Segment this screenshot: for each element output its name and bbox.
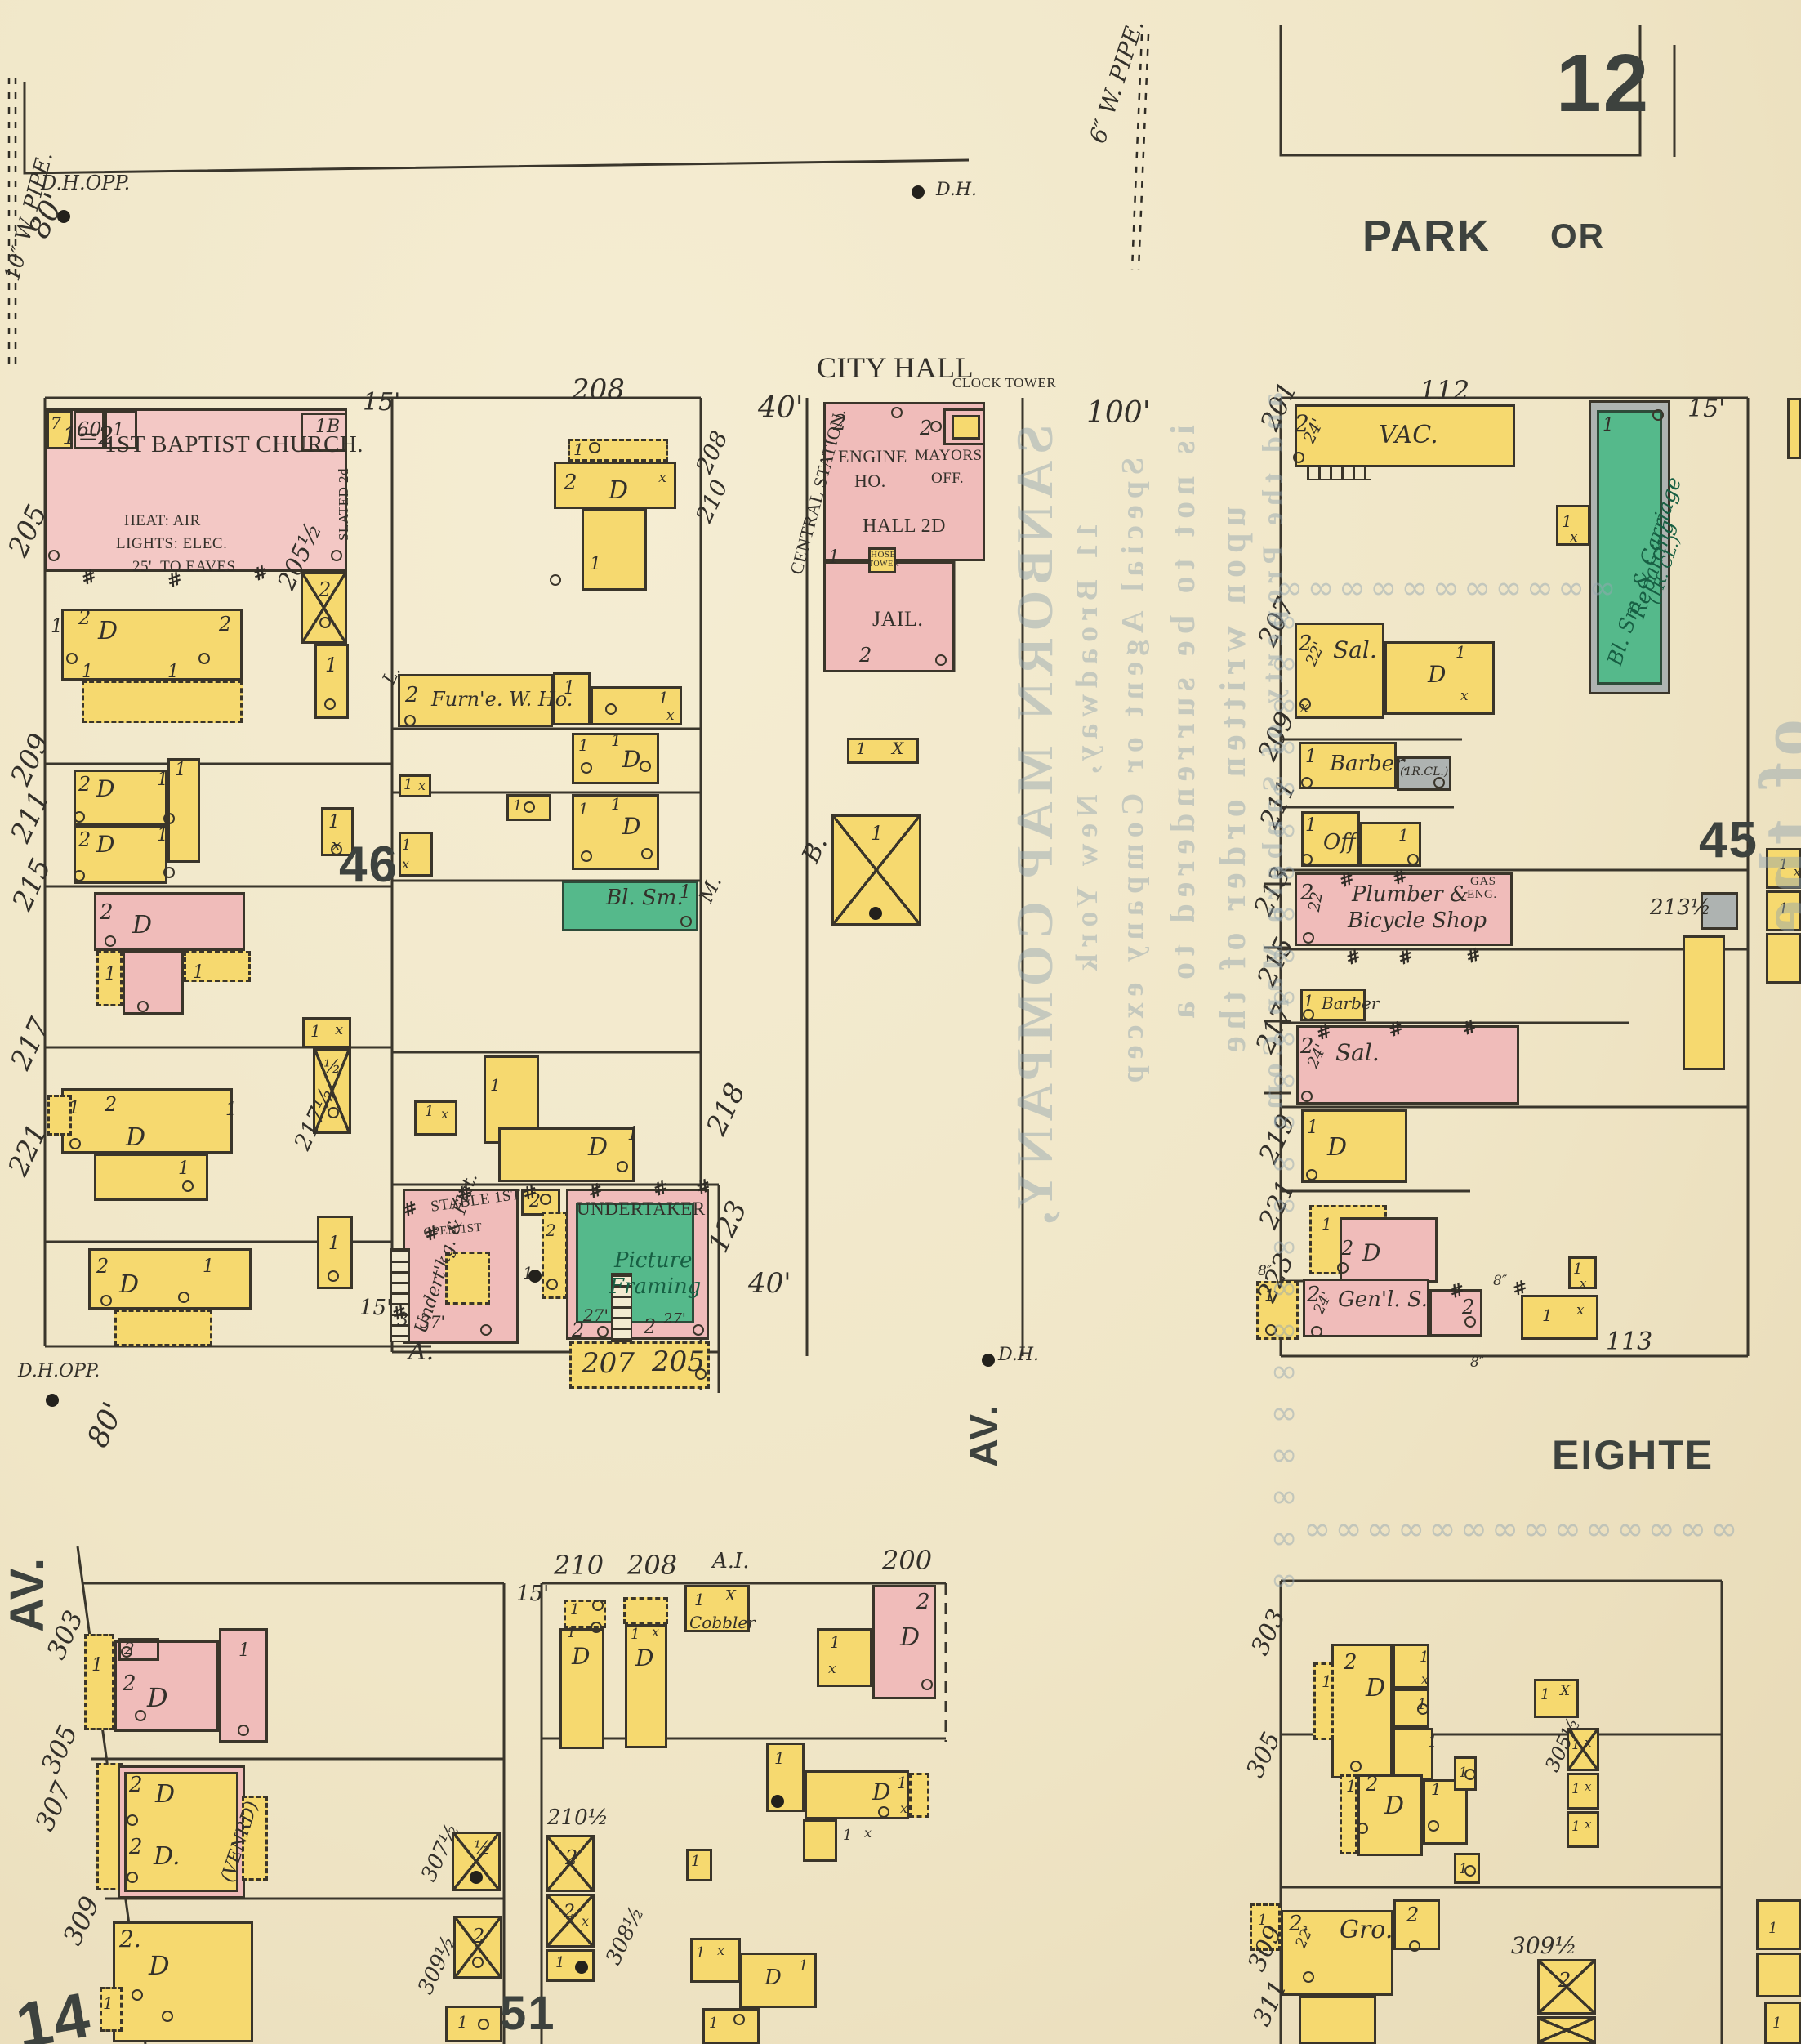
window-circle: [540, 1194, 551, 1205]
map-label: ½: [323, 1059, 341, 1077]
map-label: x: [1576, 1304, 1585, 1318]
edge-building: [1756, 1953, 1801, 1997]
window-circle: [480, 1324, 492, 1336]
map-label: x: [652, 1626, 659, 1639]
edge-building: [1764, 2002, 1801, 2044]
map-label: 8″: [1470, 1356, 1484, 1370]
edge-building: [1766, 933, 1801, 984]
hydrant-label: D.H.OPP.: [18, 1363, 100, 1381]
chain-border-watermark: ∞∞∞∞∞∞∞∞∞∞∞: [1276, 572, 1620, 605]
dwelling: [88, 1248, 252, 1310]
map-label: 1: [1322, 1673, 1332, 1689]
map-label: 2: [78, 774, 91, 794]
map-label: x: [1585, 1737, 1591, 1749]
window-circle: [597, 1326, 609, 1337]
window-circle: [878, 1806, 889, 1818]
watermark-text: SANBORN MAP COMPANY,: [1009, 425, 1061, 1231]
dwelling: [94, 1154, 208, 1201]
map-label: 1: [167, 663, 179, 681]
address-207: 207: [582, 1350, 635, 1377]
address-210b: 210: [554, 1552, 604, 1578]
porch: [82, 681, 243, 723]
address-213half: 213½: [1650, 897, 1711, 918]
map-label: x: [1585, 1819, 1591, 1831]
outbuilding: [803, 1819, 837, 1862]
map-label: x: [441, 1108, 448, 1121]
map-label: 15': [363, 391, 400, 415]
map-label: 1: [709, 2016, 718, 2031]
dwelling-wing: [123, 951, 184, 1015]
map-label: 1: [1772, 2016, 1781, 2031]
map-label: 1: [1398, 827, 1409, 843]
dwelling-label: D.: [154, 1845, 181, 1869]
map-label: 1: [799, 1959, 808, 1974]
window-circle: [921, 1679, 933, 1690]
window-circle: [546, 1279, 558, 1290]
window-circle: [182, 1180, 194, 1192]
window-circle: [137, 1001, 149, 1012]
block-number-51: 51: [500, 1990, 556, 2037]
blacksmith-label: Bl. Sm.: [606, 887, 684, 908]
map-label: 1: [691, 1854, 700, 1869]
dwelling-wing: [817, 1628, 872, 1687]
window-circle: [478, 2019, 489, 2030]
window-circle: [324, 698, 336, 710]
dwelling-label: D: [765, 1967, 782, 1988]
map-label: 2: [78, 608, 91, 627]
map-label: 2: [1406, 1905, 1419, 1925]
map-label: OFF.: [931, 471, 964, 486]
address-309halfr: 309½: [1511, 1935, 1577, 1957]
window-circle: [198, 653, 210, 664]
outbuilding: [302, 1017, 351, 1048]
window-circle: [680, 916, 692, 927]
window-circle: [581, 762, 592, 774]
map-label: 25' TO EAVES: [132, 559, 236, 574]
window-circle: [100, 1295, 112, 1306]
chain-border-watermark: ∞∞∞∞∞∞∞∞∞∞∞∞∞∞: [1304, 1513, 1741, 1546]
street-av-right: AV.: [965, 1404, 1005, 1467]
address-208b: 208: [627, 1552, 677, 1578]
map-label: 1: [843, 1828, 852, 1843]
map-label: 1: [828, 549, 840, 567]
dwelling-label: D: [572, 1645, 590, 1668]
map-label: 1: [590, 556, 601, 573]
watermark-text: is not to be surrendered to a: [1166, 425, 1201, 1024]
map-label: 1: [82, 663, 93, 681]
map-label: 1: [103, 1995, 114, 2011]
map-label: 40': [748, 1270, 791, 1297]
undertaker-label: UNDERTAKER: [577, 1199, 706, 1218]
map-label: 1: [680, 884, 691, 902]
window-circle: [581, 850, 592, 862]
street-park-or: OR: [1550, 219, 1605, 253]
street-line: [25, 82, 969, 173]
dwelling-wing: [582, 509, 647, 591]
map-label: 2: [564, 1903, 575, 1921]
window-circle: [74, 811, 85, 823]
map-label: 1: [1603, 417, 1614, 435]
porch: [623, 1597, 668, 1624]
window-circle: [693, 1324, 704, 1336]
window-circle: [1350, 1761, 1362, 1772]
map-label: 2: [405, 685, 419, 706]
map-label: 22: [1307, 890, 1326, 913]
map-label: x: [1580, 1278, 1586, 1290]
window-circle: [891, 407, 903, 418]
block-number-46: 46: [339, 840, 399, 890]
engine-house-label: ENGINE: [838, 448, 907, 466]
map-label: 27': [663, 1312, 686, 1327]
map-label: 1: [631, 1627, 640, 1642]
map-label: 1: [157, 771, 168, 789]
map-label: Framing: [609, 1276, 701, 1297]
map-label: 2: [123, 1673, 136, 1694]
mayors-office-label: MAYORS: [915, 448, 983, 463]
window-circle: [105, 935, 116, 947]
dwelling-label: D: [1327, 1136, 1347, 1160]
dwelling: [498, 1127, 635, 1182]
window-circle: [178, 1292, 189, 1303]
dwelling-label: D: [900, 1626, 920, 1650]
hydrant-dot: [771, 1795, 784, 1808]
street-width: 40': [758, 394, 804, 423]
hydrant-dot: [869, 907, 882, 920]
block-number-14: 14: [11, 1982, 96, 2044]
map-label: 7: [51, 415, 61, 431]
map-label: 2: [644, 1317, 656, 1337]
jail-label: JAIL.: [872, 609, 923, 630]
map-label: 2: [1462, 1297, 1474, 1317]
outbuilding-x: [1537, 2016, 1596, 2044]
general-store-label: Gen'l. S.: [1338, 1289, 1428, 1310]
dwelling-label: D: [155, 1783, 175, 1807]
map-label: 2: [96, 1256, 109, 1276]
map-label: 1: [578, 801, 589, 817]
map-label: 1: [225, 1101, 237, 1119]
window-circle: [1301, 1091, 1313, 1102]
hall-label: HALL 2D: [863, 516, 946, 536]
map-label: x: [1570, 531, 1578, 545]
dwelling-label: D: [872, 1781, 890, 1804]
map-label: 2: [572, 1320, 584, 1340]
map-label: 60': [77, 420, 107, 440]
street-av-left: AV.: [4, 1556, 51, 1632]
map-label: 15': [1687, 397, 1725, 422]
dwelling-label: D: [1384, 1794, 1404, 1819]
map-label: 2: [100, 902, 114, 923]
map-label: 1: [1571, 1820, 1580, 1834]
dwelling-label: D: [96, 833, 114, 856]
map-label: 1: [1346, 1778, 1357, 1794]
gas-engine-label: GAS: [1470, 876, 1496, 888]
dwelling-label: D: [126, 1126, 145, 1150]
map-label: (1R.CL.): [1400, 766, 1448, 778]
map-label: 1: [1573, 1262, 1582, 1277]
map-label: 2: [219, 614, 231, 634]
map-label: x: [335, 1023, 343, 1038]
map-label: SLATED 2d: [337, 468, 350, 541]
map-label: 2: [129, 1774, 143, 1796]
window-circle: [1303, 1971, 1314, 1983]
dwelling-label: D: [609, 479, 628, 503]
map-label: 1B: [315, 418, 340, 436]
map-label: 1: [69, 1100, 80, 1118]
map-label: 1: [1768, 1921, 1777, 1936]
window-circle: [550, 574, 561, 586]
sheet-number: 12: [1556, 42, 1650, 124]
window-circle: [605, 703, 617, 715]
map-label: 2: [1344, 1652, 1357, 1673]
clock-tower-label: CLOCK TOWER: [952, 376, 1056, 390]
map-label: 2: [859, 645, 872, 665]
map-label: 1: [567, 1626, 576, 1640]
saloon-label: Sal.: [1333, 639, 1377, 662]
map-label: 1: [830, 1634, 840, 1650]
map-label: 1: [113, 422, 124, 440]
window-circle: [48, 550, 60, 561]
window-circle: [1301, 777, 1313, 788]
hydrant-dot: [46, 1394, 59, 1407]
dwelling: [61, 1088, 233, 1154]
dwelling: [94, 892, 245, 951]
window-circle: [935, 654, 947, 666]
map-label: 1: [238, 1642, 250, 1660]
map-label: x: [666, 709, 675, 723]
window-circle: [328, 1270, 339, 1282]
window-circle: [1306, 1169, 1317, 1180]
map-label: 1: [1456, 644, 1466, 660]
window-circle: [163, 813, 175, 824]
clock-tower: [952, 415, 980, 440]
map-label: 1: [570, 1603, 579, 1618]
map-label: 1: [402, 838, 411, 853]
map-label: 2: [1341, 1238, 1353, 1258]
map-label: 1: [1571, 1783, 1580, 1796]
map-label: 2: [472, 1926, 484, 1946]
outbuilding: [1521, 1295, 1598, 1340]
dwelling: [1331, 1644, 1393, 1778]
window-circle: [617, 1161, 628, 1172]
dwelling-label: D: [149, 1953, 170, 1979]
map-label: 1: [51, 616, 63, 636]
saloon-label: Sal.: [1335, 1042, 1380, 1064]
map-label: x: [1585, 1781, 1591, 1793]
map-label: x: [900, 1802, 907, 1815]
street-width: 100': [1086, 399, 1151, 428]
map-label: 1: [564, 680, 575, 698]
edge-building: [1787, 398, 1801, 459]
map-label: 2: [124, 1640, 135, 1657]
address-200: 200: [882, 1547, 932, 1573]
window-circle: [524, 801, 535, 813]
map-label: 1: [1322, 1216, 1332, 1232]
map-label: 1: [1562, 513, 1572, 529]
hydrant-label: D.H.OPP.: [41, 173, 130, 193]
dwelling-label: D: [98, 619, 118, 644]
map-label: HEAT: AIR: [124, 513, 201, 529]
chain-border-watermark: ∞∞∞∞∞∞∞∞∞∞∞∞∞∞∞∞∞∞∞∞∞∞∞∞: [1268, 603, 1300, 1603]
map-label: 1: [175, 761, 186, 779]
window-circle: [66, 653, 78, 664]
map-label: 1: [328, 814, 340, 832]
address-113: 113: [1606, 1330, 1652, 1354]
sanborn-map-sheet: ##################### D.H.OPP.80'10″ W. …: [0, 0, 1801, 2044]
window-circle: [640, 761, 651, 772]
map-label: 1: [157, 827, 168, 845]
map-label: 2: [833, 413, 847, 434]
map-label: x: [717, 1944, 724, 1957]
window-circle: [127, 1872, 138, 1883]
window-circle: [69, 1138, 81, 1149]
map-label: LIGHTS: ELEC.: [116, 536, 227, 551]
window-circle: [162, 2011, 173, 2022]
map-label: 2: [105, 1095, 117, 1114]
map-label: 27': [583, 1307, 609, 1323]
address-ai: A.I.: [712, 1551, 750, 1572]
dwelling-label: D: [622, 748, 640, 771]
map-label: x: [402, 858, 409, 871]
window-circle: [1407, 854, 1419, 865]
window-circle: [1428, 1820, 1439, 1832]
map-label: 1: [1417, 1698, 1426, 1712]
map-label: 1: [91, 1657, 103, 1675]
map-label: 15': [359, 1297, 392, 1319]
map-label: 2: [529, 1193, 541, 1211]
map-label: 1: [578, 737, 589, 753]
window-circle: [1337, 1262, 1349, 1274]
dwelling: [1340, 1217, 1438, 1283]
map-label: 1: [774, 1750, 785, 1766]
window-circle: [319, 617, 331, 628]
map-label: 2: [565, 1848, 577, 1868]
window-circle: [589, 442, 600, 453]
plumber-label: Plumber &: [1352, 884, 1469, 905]
outbuilding: [1683, 935, 1725, 1070]
dwelling-label: D: [588, 1136, 608, 1160]
map-label: 1: [1571, 1738, 1580, 1752]
map-label: 1: [523, 1265, 533, 1281]
cobbler-label: Cobbler: [689, 1614, 756, 1631]
window-circle: [1433, 777, 1445, 788]
window-circle: [331, 550, 342, 561]
hydrant-dot: [912, 185, 925, 199]
map-label: ENG.: [1467, 889, 1497, 901]
map-label: 1: [1542, 1307, 1553, 1323]
map-label: 1: [457, 2014, 468, 2030]
hydrant-label: D.H.: [998, 1346, 1039, 1364]
address-210half: 210½: [547, 1807, 609, 1828]
watermark-text: Special Agent or Company excep: [1117, 457, 1148, 1089]
map-label: 1: [696, 1946, 705, 1961]
map-label: 2: [129, 1836, 143, 1858]
map-label: 1: [1459, 1766, 1468, 1780]
map-label: 1: [1540, 1688, 1549, 1703]
map-label: 1: [897, 1774, 907, 1791]
grocery-rear: [1299, 1996, 1376, 2044]
window-circle: [641, 848, 653, 859]
map-label: x: [1421, 1673, 1429, 1686]
window-circle: [163, 867, 175, 878]
dwelling-label: D: [119, 1273, 139, 1297]
map-label: 1: [328, 1235, 340, 1253]
hydrant-label: D.H.: [936, 181, 977, 199]
map-label: 1: [1304, 993, 1314, 1009]
window-circle: [238, 1725, 249, 1736]
map-label: x: [1460, 690, 1469, 703]
map-label: TOWER: [868, 560, 899, 569]
outbuilding: [445, 2006, 502, 2042]
map-label: 1: [658, 690, 669, 706]
map-label: 1: [193, 964, 204, 982]
address-112: 112: [1420, 377, 1469, 404]
map-label: 1: [310, 1023, 321, 1039]
map-label: x: [864, 1827, 872, 1840]
map-label: 1: [871, 823, 883, 843]
dwelling-label: D: [622, 815, 640, 838]
map-label: ½: [474, 1840, 491, 1858]
watermark-text: of the: [1748, 719, 1801, 939]
window-circle: [1409, 1940, 1420, 1952]
window-circle: [592, 1600, 604, 1611]
street-park: PARK: [1362, 214, 1491, 258]
map-label: x: [828, 1662, 836, 1676]
watermark-text: 11 Broadway, New York: [1072, 523, 1103, 977]
window-circle: [127, 1814, 138, 1826]
map-label: 2: [920, 418, 932, 438]
window-circle: [1311, 1326, 1322, 1337]
map-label: 1: [1307, 1119, 1318, 1137]
map-label: 1: [573, 441, 584, 457]
map-label: 1: [403, 778, 412, 792]
map-label: x: [658, 471, 666, 485]
window-circle: [1293, 452, 1304, 463]
window-circle: [472, 1957, 484, 1968]
map-label: 2: [319, 580, 331, 600]
map-label: 1: [1258, 1913, 1267, 1928]
barber-label: Barber.: [1330, 753, 1409, 774]
map-label: 2: [78, 830, 91, 850]
street-and-lot-lines: [0, 0, 1801, 2044]
map-label: X: [892, 740, 903, 756]
window-circle: [132, 1989, 143, 2001]
hydrant-dot: [575, 1961, 588, 1974]
window-circle: [74, 870, 85, 881]
grocery-label: Gro.: [1340, 1918, 1393, 1943]
map-label: 1: [105, 966, 116, 984]
map-label: 1: [1305, 817, 1317, 835]
window-circle: [135, 1710, 146, 1721]
edge-building: [1756, 1899, 1801, 1950]
map-label: 15': [516, 1583, 549, 1604]
map-label: x: [418, 779, 426, 792]
map-label: 1: [611, 796, 622, 812]
map-label: HO.: [854, 472, 886, 490]
porch: [909, 1773, 929, 1818]
address-205: 205: [652, 1348, 705, 1376]
map-label: 1: [513, 799, 522, 814]
map-label: 2: [1558, 1970, 1571, 1990]
window-circle: [1301, 854, 1313, 865]
porch: [114, 1310, 212, 1346]
hose-tower-label: HOSE: [871, 551, 896, 560]
map-label: 1: [203, 1258, 214, 1276]
city-hall-label: CITY HALL: [817, 353, 974, 382]
street-eighteenth: EIGHTE: [1552, 1435, 1714, 1475]
map-label: 1: [694, 1591, 705, 1608]
map-label: 1: [1428, 1735, 1437, 1750]
water-main-line: [9, 34, 1148, 372]
